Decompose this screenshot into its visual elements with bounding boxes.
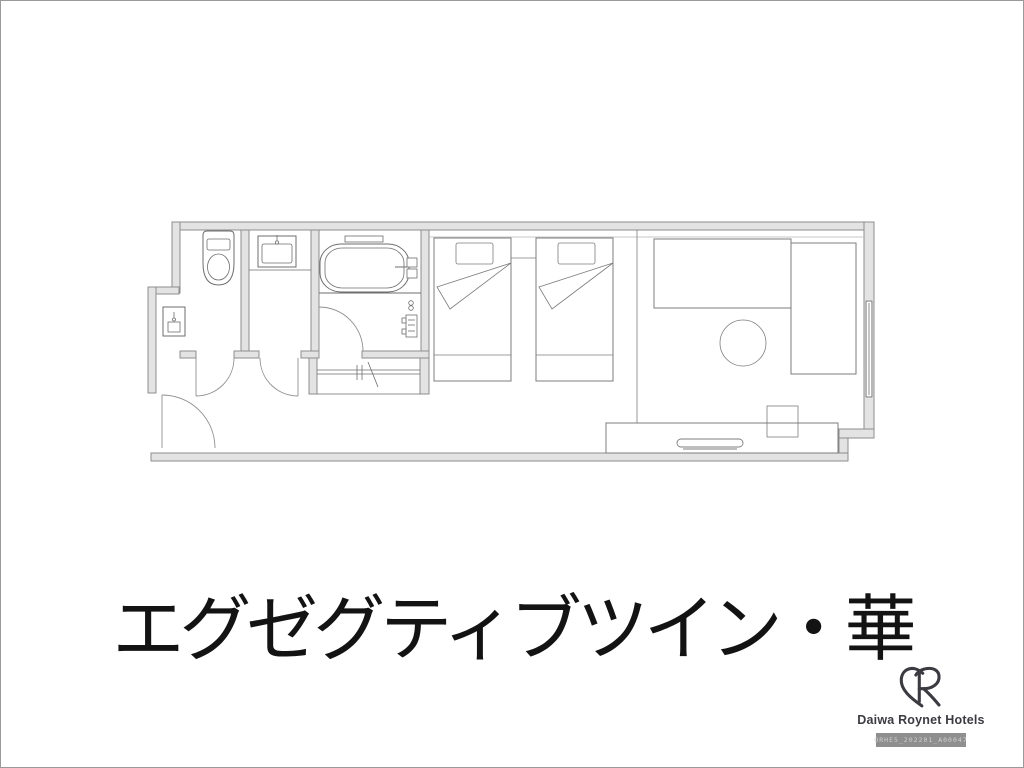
daiwa-roynet-logo-icon bbox=[895, 663, 947, 711]
sofa-long bbox=[654, 239, 791, 308]
vanity-faucet bbox=[275, 241, 278, 244]
bathroom-door bbox=[319, 307, 363, 351]
brand-name: Daiwa Roynet Hotels bbox=[857, 713, 984, 727]
tub-faucet-a bbox=[407, 258, 417, 267]
drain-control-b bbox=[409, 306, 414, 311]
wall-vanity-bath bbox=[311, 230, 319, 354]
tub-shelf bbox=[345, 236, 383, 242]
sofa-side bbox=[791, 243, 856, 374]
bed-1 bbox=[434, 238, 511, 381]
closet-post-left bbox=[309, 358, 317, 394]
bathtub bbox=[320, 244, 409, 292]
shower-panel bbox=[402, 315, 417, 337]
bed-2 bbox=[536, 238, 613, 381]
brand-logo: Daiwa Roynet Hotels DRHE5_202201_A00047 bbox=[857, 663, 985, 747]
toilet-door bbox=[196, 358, 234, 396]
image-code-badge: DRHE5_202201_A00047 bbox=[876, 733, 966, 747]
desk bbox=[606, 423, 838, 453]
wall-corridor-a bbox=[180, 351, 196, 358]
drain-control-a bbox=[409, 301, 414, 306]
vanity-sink bbox=[249, 235, 311, 270]
wall-corridor-b bbox=[234, 351, 259, 358]
closet-rail bbox=[317, 362, 420, 394]
hanger-diagonal bbox=[368, 362, 378, 387]
wall-top bbox=[172, 222, 874, 230]
doors bbox=[162, 307, 363, 448]
wall-bath-bedroom bbox=[421, 230, 429, 358]
entrance-door bbox=[162, 395, 215, 448]
toilet bbox=[203, 231, 234, 285]
page: エグゼグティブツイン・華 Daiwa Roynet Hotels DRHE5_2… bbox=[0, 0, 1024, 768]
wall-corridor-c bbox=[301, 351, 319, 358]
image-code: DRHE5_202201_A00047 bbox=[874, 736, 967, 744]
toilet-lid bbox=[207, 239, 230, 250]
round-table bbox=[720, 320, 766, 366]
bed-1-pillow bbox=[456, 243, 493, 264]
wall-left-upper bbox=[172, 222, 180, 293]
wall-left-lower bbox=[148, 287, 156, 393]
wall-corridor-d bbox=[362, 351, 429, 358]
living-area bbox=[606, 230, 856, 453]
tub-faucet-b bbox=[407, 269, 417, 278]
vanity-door bbox=[260, 358, 298, 396]
wall-toilet-vanity bbox=[241, 230, 249, 354]
utility-sink bbox=[163, 307, 185, 336]
bathroom-fixtures bbox=[319, 236, 421, 337]
vanity-basin bbox=[262, 244, 292, 263]
wall-step-horizontal bbox=[839, 429, 874, 438]
window bbox=[865, 300, 873, 398]
beds bbox=[434, 238, 613, 381]
closet-post-right bbox=[420, 358, 429, 394]
wall-bottom bbox=[151, 453, 848, 461]
bed-2-pillow bbox=[558, 243, 595, 264]
